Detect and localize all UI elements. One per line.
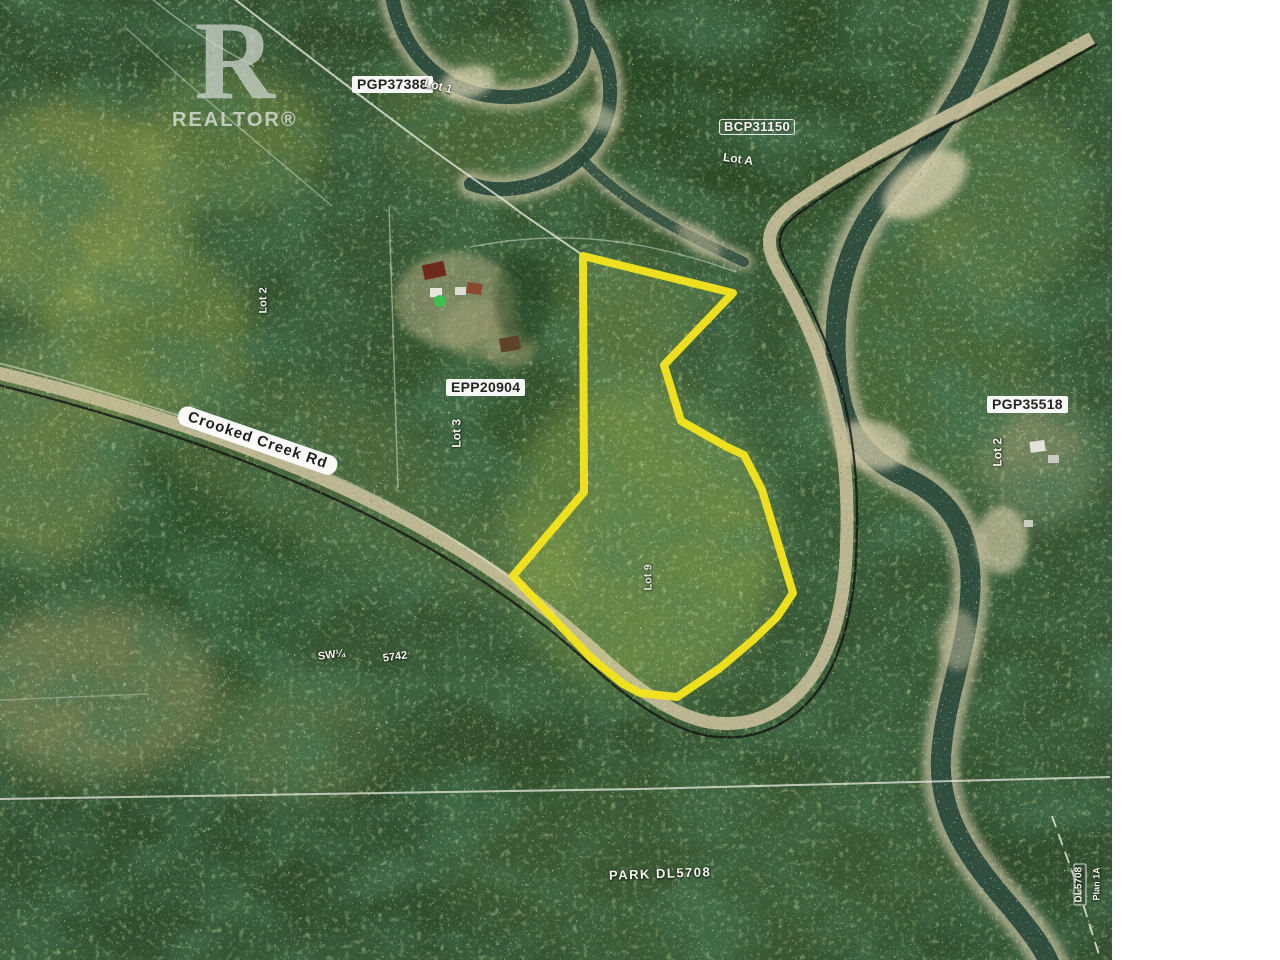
- listing-photo-page: { "photo": { "type": "aerial-parcel-map"…: [0, 0, 1280, 960]
- lot-label-9: Lot 9: [643, 564, 655, 590]
- building-gray-roof: [455, 287, 466, 295]
- aerial-photo: R REALTOR® PGP37388 Lot 1 BCP31150 Lot A…: [0, 0, 1112, 960]
- district-lot-5708-label: DL5708: [1074, 864, 1087, 906]
- plan-note-label: Plan 1A: [1093, 867, 1102, 900]
- lot-label-2-west: Lot 2: [258, 287, 270, 313]
- plan-label-pgp37388: PGP37388: [352, 76, 433, 93]
- photo-margin: [1112, 0, 1280, 960]
- lot-label-3: Lot 3: [450, 419, 463, 448]
- green-structure: [434, 295, 446, 307]
- plan-label-epp20904: EPP20904: [446, 379, 525, 396]
- aerial-photo-canvas: [0, 0, 1112, 960]
- forest-speckle-dark: [0, 0, 1112, 960]
- building-brown: [466, 282, 482, 295]
- lot-label-2-east: Lot 2: [991, 438, 1004, 467]
- plan-label-bcp31150: BCP31150: [719, 119, 795, 135]
- plan-label-pgp35518: PGP35518: [987, 396, 1068, 413]
